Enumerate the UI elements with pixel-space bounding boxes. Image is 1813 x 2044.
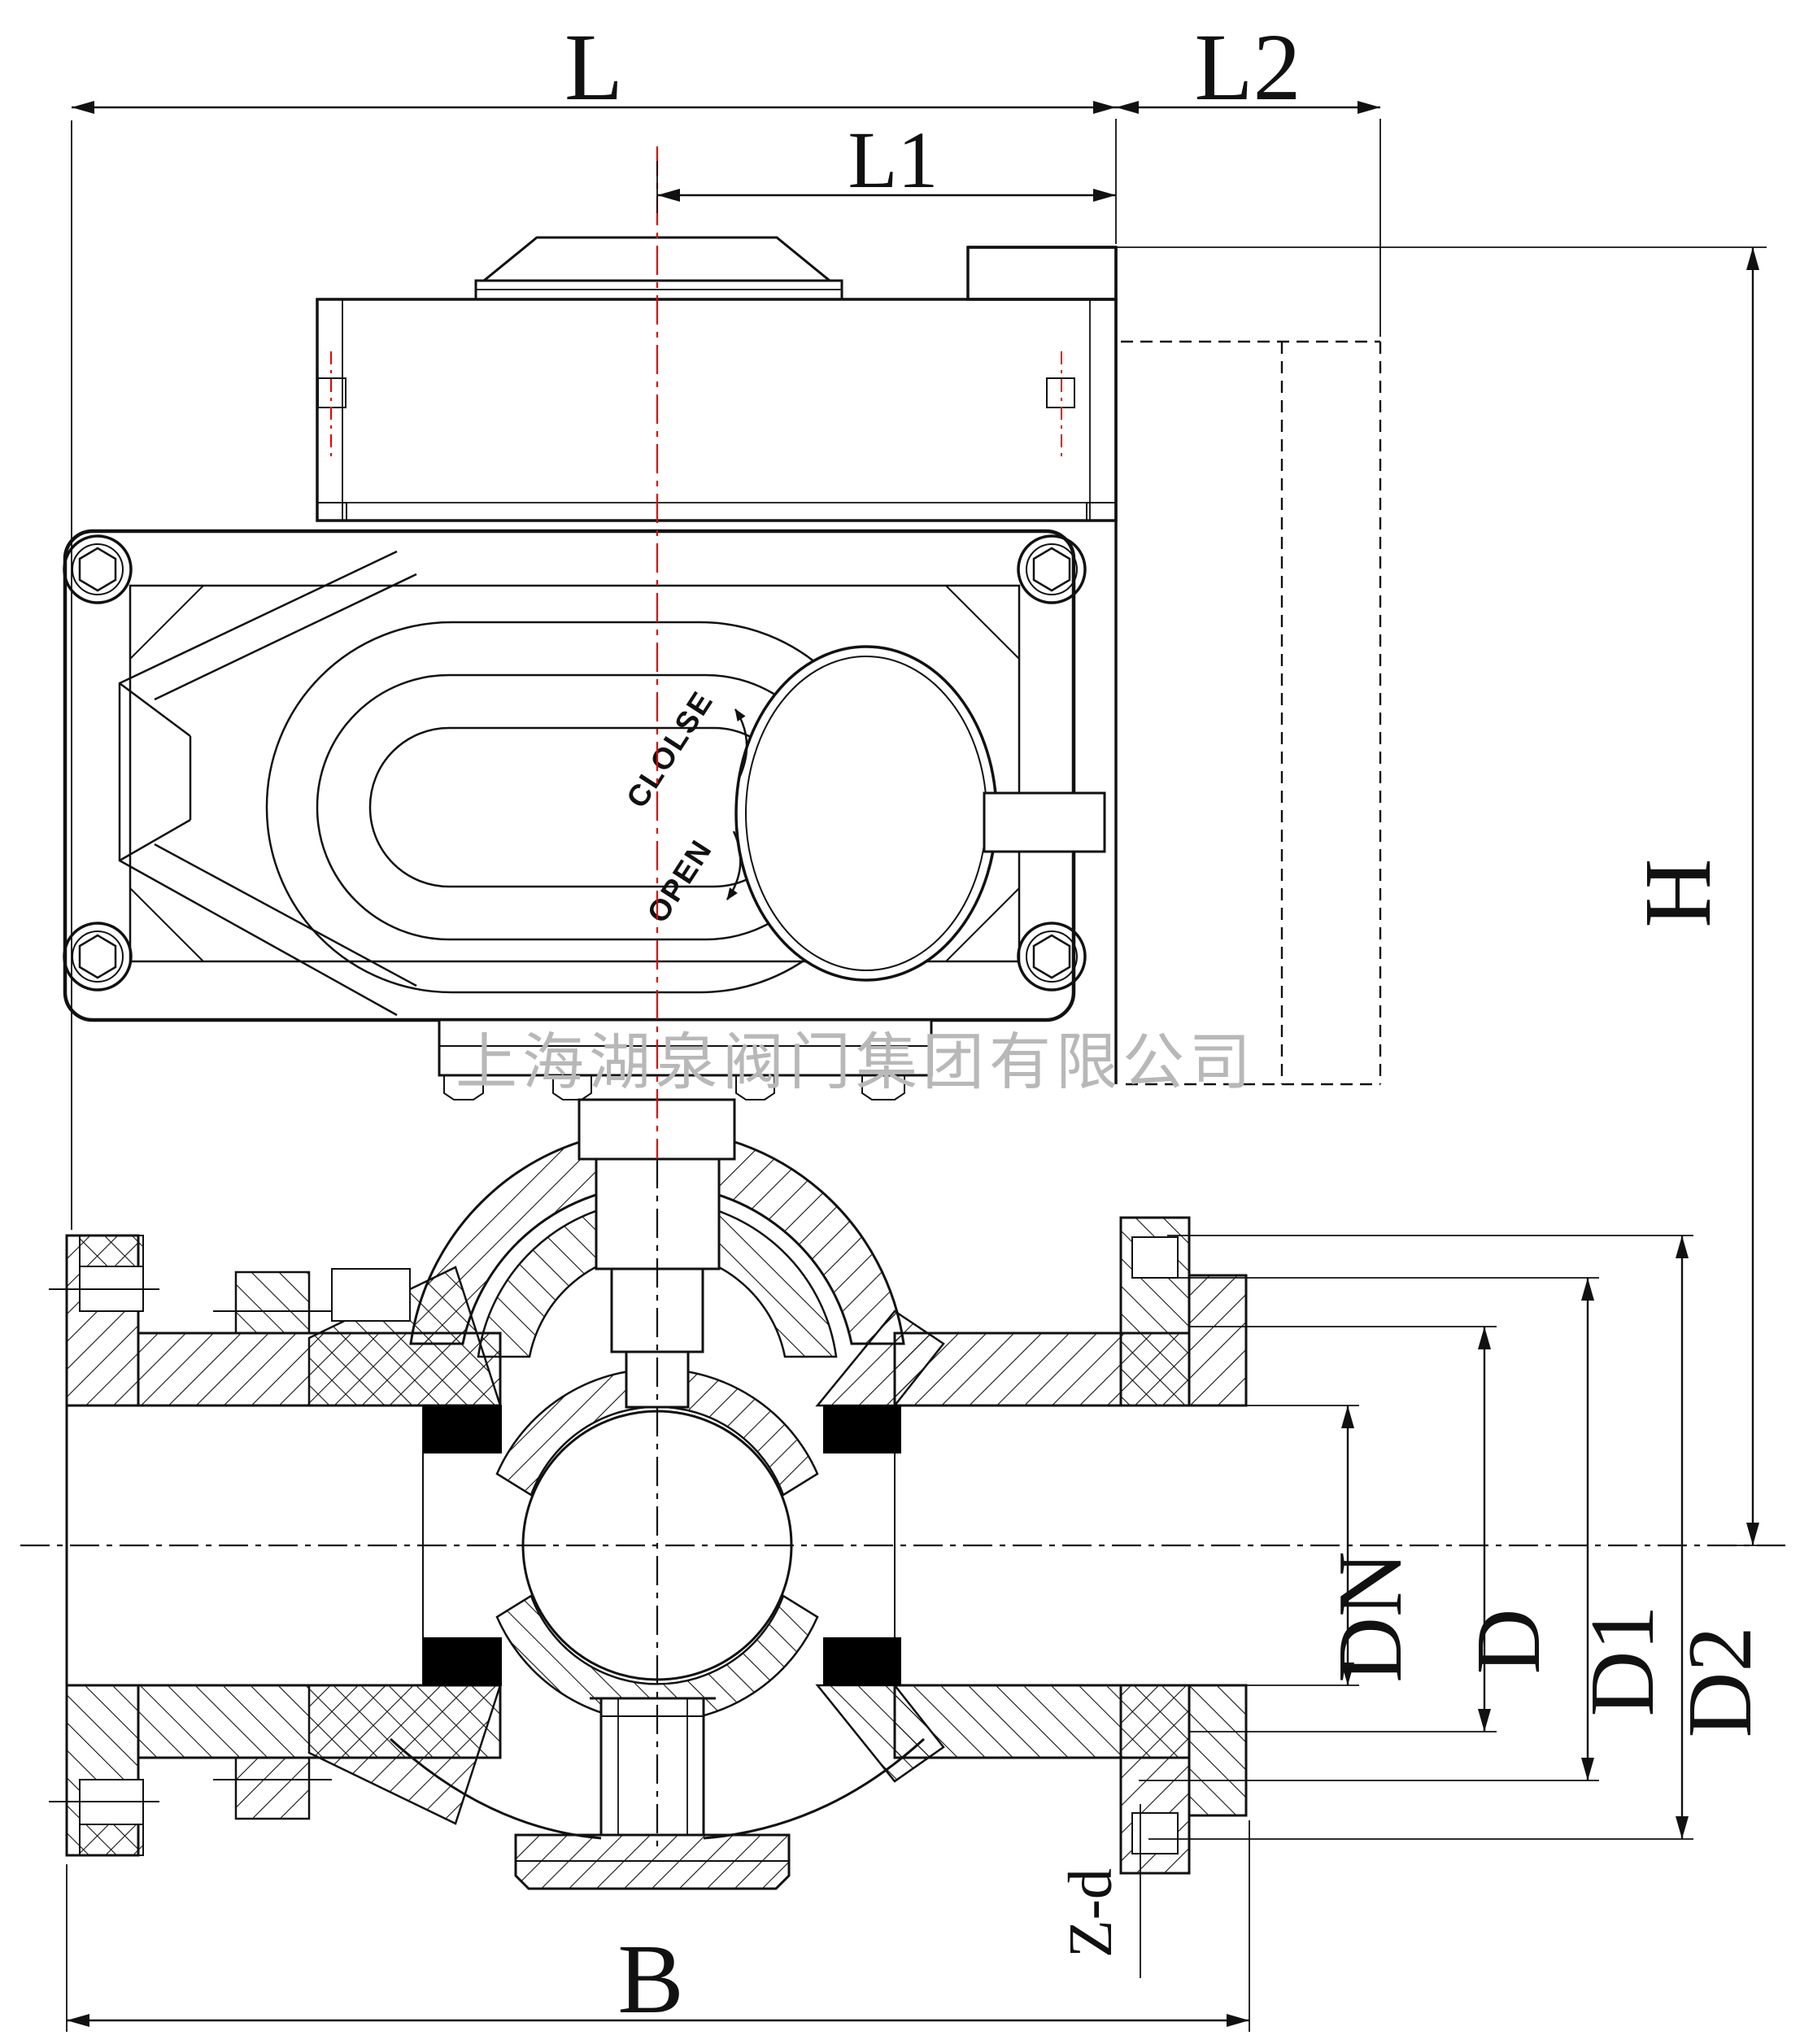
close-label: CLOLSE [620, 685, 720, 813]
dimension-label-D2: D2 [1670, 1627, 1771, 1738]
seat-bottom-left [423, 1637, 502, 1686]
dimension-label-D: D [1458, 1609, 1559, 1675]
dimension-L: L [72, 14, 1116, 120]
seat-top-right [823, 1405, 901, 1453]
dimension-label-L1: L1 [848, 115, 938, 205]
right-flange-bolt-window-top [1132, 1237, 1178, 1278]
valve-body-section [49, 1100, 1246, 1889]
pipe-stub-top [1189, 1275, 1246, 1406]
dimension-H: H [1624, 247, 1753, 1545]
joint-flange-top [236, 1272, 309, 1333]
dimension-label-H: H [1624, 858, 1731, 927]
dimension-D2: D2 [1670, 1236, 1771, 1839]
dimension-label-Zd: Z-d [1057, 1868, 1125, 1958]
joint-flange-bottom [236, 1758, 309, 1819]
actuator-top-box-step [968, 247, 1116, 299]
dimension-D1: D1 [1572, 1278, 1673, 1780]
seat-bottom-right [823, 1637, 901, 1686]
dimension-L1: L1 [657, 115, 1116, 205]
dimension-L2: L2 [1116, 14, 1380, 120]
pipe-stub-bottom [1189, 1685, 1246, 1815]
electric-actuator: CLOLSE OPEN [64, 238, 1380, 1100]
right-flange-bolt-window-bottom [1132, 1813, 1178, 1854]
valve-drawing-canvas: CLOLSE OPEN 上海湖泉阀门集团有限公司 [0, 0, 1813, 2044]
dimension-label-L2: L2 [1194, 14, 1301, 120]
open-label: OPEN [641, 834, 719, 929]
dimension-D: D [1458, 1327, 1559, 1732]
knob-handle-tab [984, 793, 1105, 852]
left-flange-rim-cap-top [80, 1236, 143, 1266]
position-indicator-knob [736, 647, 996, 980]
body-shoulder-bottom-left [309, 1685, 500, 1824]
dimension-label-B: B [617, 1924, 683, 2034]
stadium-outline-inner [370, 728, 793, 887]
seat-top-left [423, 1405, 502, 1453]
dimension-label-DN: DN [1320, 1551, 1421, 1683]
body-pocket-window [332, 1269, 410, 1321]
actuator-top-box [317, 299, 1116, 521]
hex-bolt [64, 536, 131, 603]
left-flange-rim-cap-bottom [80, 1824, 143, 1855]
hex-bolt [64, 923, 131, 990]
drawing-page: CLOLSE OPEN 上海湖泉阀门集团有限公司 [0, 0, 1813, 2044]
dimension-label-D1: D1 [1572, 1606, 1673, 1717]
open-direction-arrow [727, 831, 740, 900]
dimension-label-L: L [564, 14, 623, 120]
hidden-clearance-box [1121, 342, 1380, 1084]
company-watermark: 上海湖泉阀门集团有限公司 [455, 1029, 1256, 1097]
